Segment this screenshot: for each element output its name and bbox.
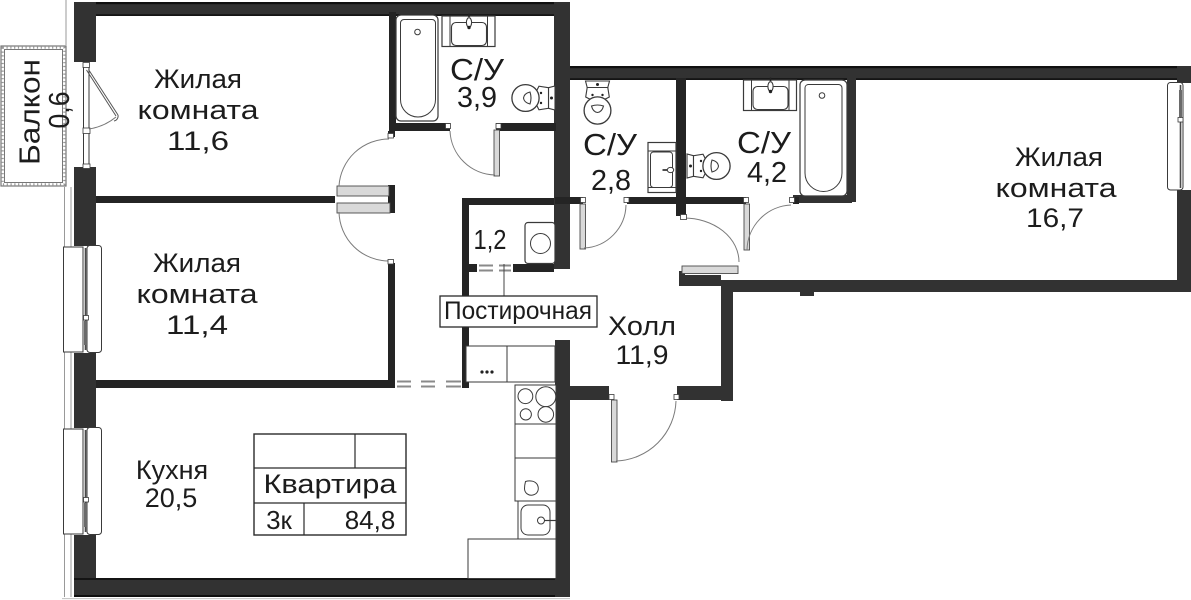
svg-text:Квартира: Квартира: [264, 469, 398, 499]
svg-text:11,9: 11,9: [616, 340, 669, 370]
svg-text:комната: комната: [996, 173, 1118, 203]
svg-text:комната: комната: [137, 279, 259, 309]
svg-text:84,8: 84,8: [345, 505, 396, 535]
svg-text:С/У: С/У: [737, 125, 791, 160]
svg-text:Кухня: Кухня: [136, 455, 208, 485]
svg-text:4,2: 4,2: [747, 157, 787, 189]
svg-text:11,6: 11,6: [167, 126, 229, 156]
svg-text:Жилая: Жилая: [1015, 142, 1103, 172]
svg-text:20,5: 20,5: [145, 483, 198, 513]
svg-text:Балкон: Балкон: [15, 59, 47, 165]
svg-text:С/У: С/У: [583, 127, 637, 162]
svg-text:0,6: 0,6: [44, 92, 76, 129]
svg-text:комната: комната: [138, 95, 260, 125]
svg-text:Жилая: Жилая: [153, 248, 241, 278]
svg-text:2,8: 2,8: [591, 165, 631, 197]
svg-text:Холл: Холл: [608, 311, 676, 341]
svg-text:11,4: 11,4: [166, 310, 228, 340]
svg-text:Постирочная: Постирочная: [444, 297, 592, 325]
svg-text:1,2: 1,2: [474, 224, 507, 255]
svg-text:3к: 3к: [266, 505, 292, 535]
svg-text:Жилая: Жилая: [154, 64, 242, 94]
svg-text:3,9: 3,9: [457, 82, 497, 114]
svg-text:16,7: 16,7: [1026, 203, 1084, 233]
